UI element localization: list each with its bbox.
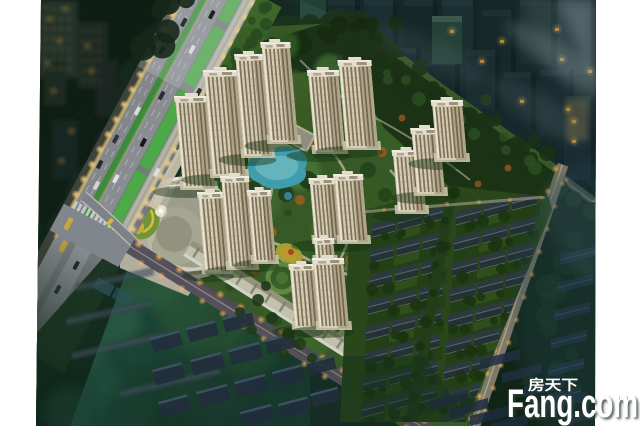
svg-text:Fang.com: Fang.com	[507, 382, 638, 426]
